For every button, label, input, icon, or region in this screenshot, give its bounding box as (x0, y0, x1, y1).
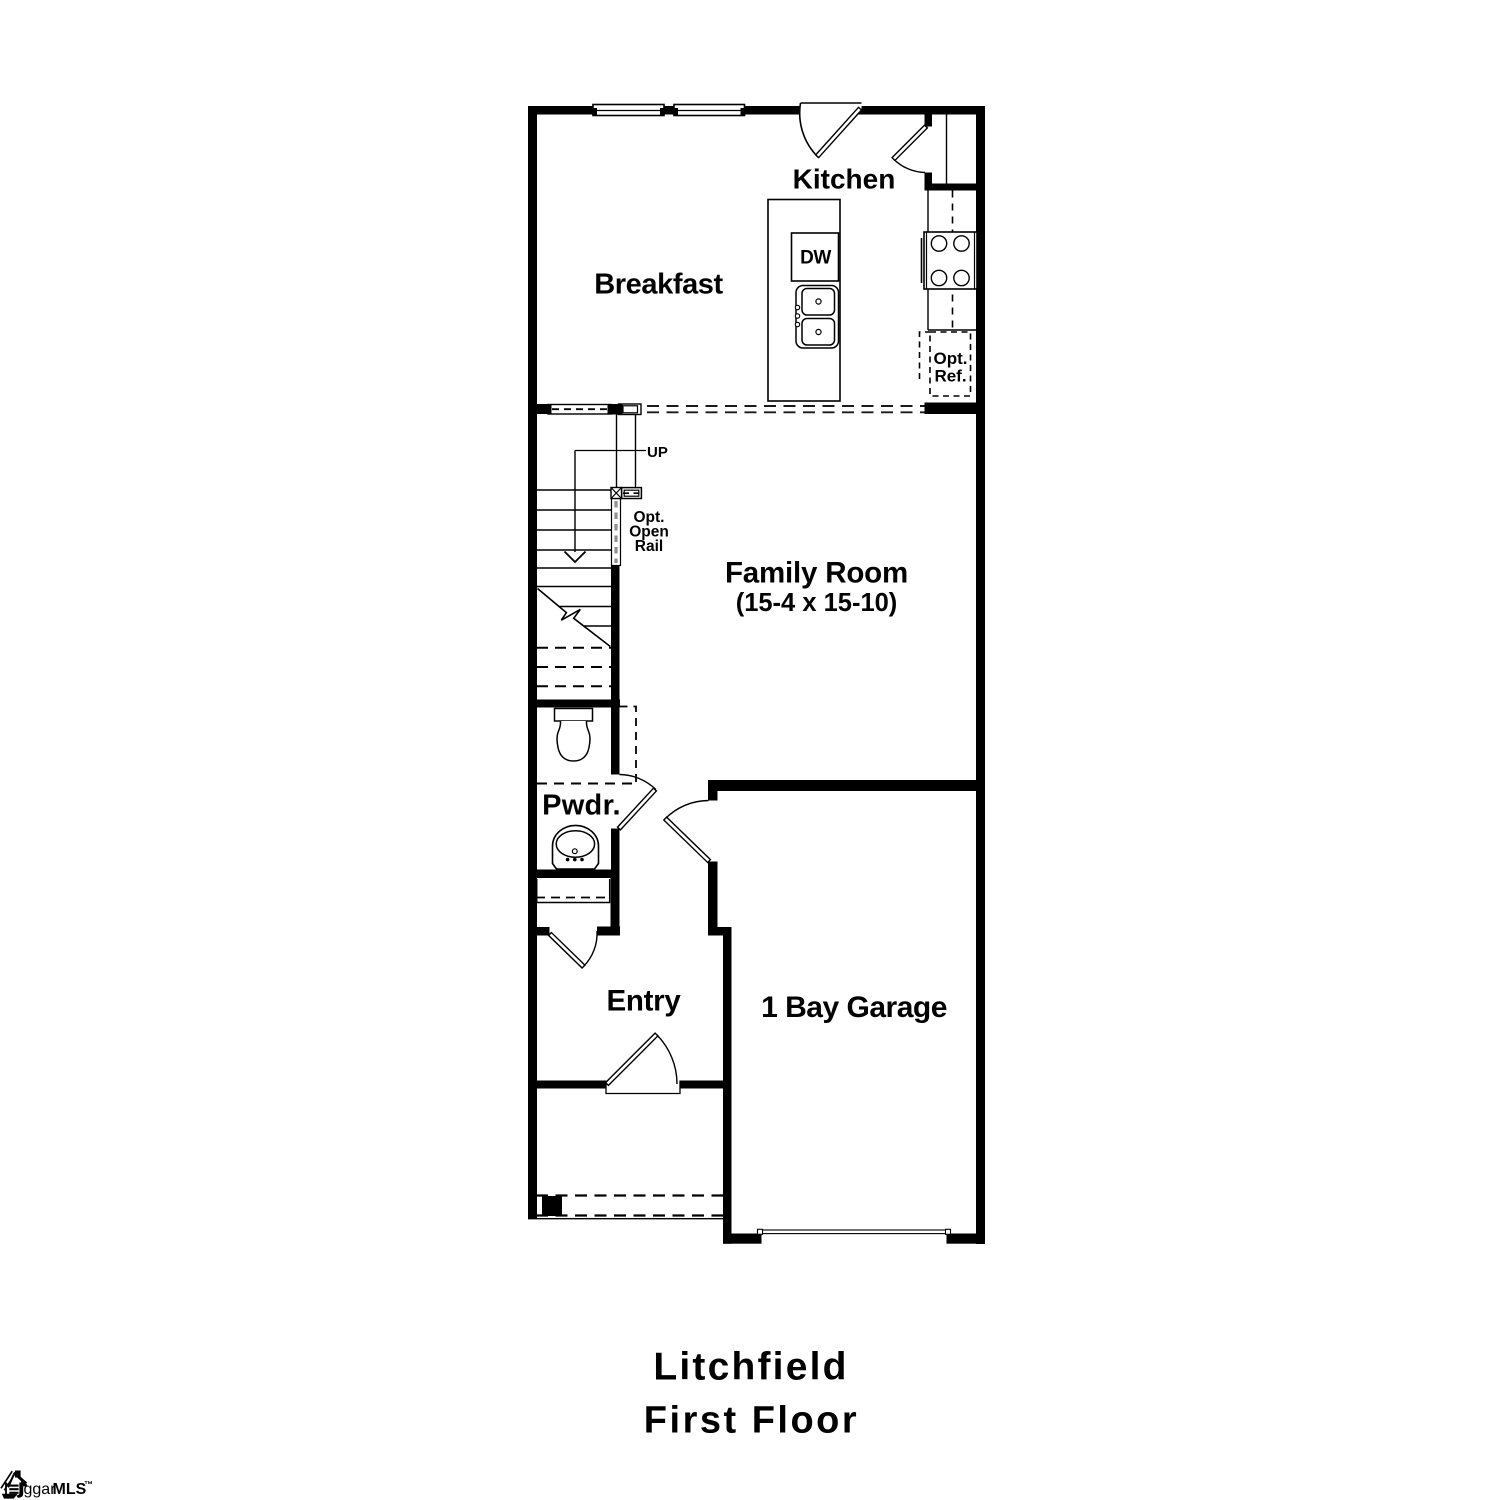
svg-text:Pwdr.: Pwdr. (542, 790, 621, 822)
svg-text:1 Bay Garage: 1 Bay Garage (761, 991, 947, 1024)
svg-text:Entry: Entry (607, 985, 682, 1018)
svg-text:Opt.: Opt. (934, 349, 968, 368)
svg-text:Family Room: Family Room (725, 557, 908, 590)
svg-text:Litchfield: Litchfield (653, 1346, 848, 1389)
svg-text:Breakfast: Breakfast (594, 269, 723, 301)
svg-text:DW: DW (800, 248, 831, 269)
svg-text:ggar: ggar (24, 1481, 57, 1498)
svg-text:Rail: Rail (635, 538, 663, 555)
svg-text:UP: UP (647, 444, 668, 461)
svg-text:Ref.: Ref. (934, 367, 966, 386)
svg-text:Kitchen: Kitchen (793, 164, 896, 195)
svg-text:First Floor: First Floor (644, 1400, 859, 1442)
svg-text:(15-4 x 15-10): (15-4 x 15-10) (736, 589, 898, 617)
svg-text:MLS: MLS (53, 1481, 87, 1498)
svg-text:™: ™ (84, 1479, 93, 1489)
